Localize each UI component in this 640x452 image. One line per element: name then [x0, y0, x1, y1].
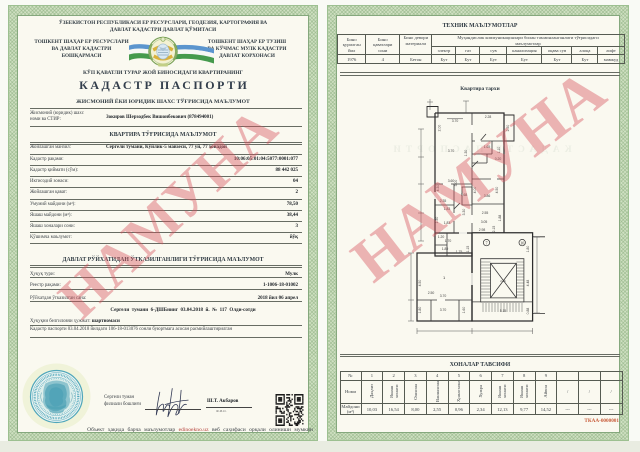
svg-text:3.05: 3.05: [481, 220, 488, 224]
svg-text:1: 1: [443, 275, 446, 280]
svg-text:10: 10: [520, 241, 524, 246]
svg-text:2.00: 2.00: [438, 125, 442, 132]
svg-text:1.80: 1.80: [418, 307, 422, 314]
svg-text:2.28: 2.28: [485, 115, 492, 119]
svg-text:2.15: 2.15: [492, 226, 496, 233]
svg-text:1.15: 1.15: [466, 246, 470, 253]
svg-text:3.70: 3.70: [440, 294, 447, 298]
svg-text:4.50: 4.50: [418, 280, 422, 287]
svg-text:1.88: 1.88: [498, 215, 502, 222]
svg-text:1.80: 1.80: [526, 246, 530, 253]
svg-text:2.98: 2.98: [479, 228, 486, 232]
svg-text:0.88: 0.88: [526, 308, 530, 315]
svg-text:4.48: 4.48: [526, 280, 530, 287]
svg-text:3.70: 3.70: [452, 119, 459, 123]
svg-text:2.16: 2.16: [500, 279, 506, 283]
svg-text:1.75: 1.75: [456, 250, 463, 254]
svg-text:3.70: 3.70: [440, 308, 447, 312]
svg-text:1.60: 1.60: [462, 307, 466, 314]
svg-text:2.50: 2.50: [428, 291, 435, 295]
svg-text:7: 7: [485, 241, 487, 246]
svg-text:5.15: 5.15: [500, 309, 507, 313]
